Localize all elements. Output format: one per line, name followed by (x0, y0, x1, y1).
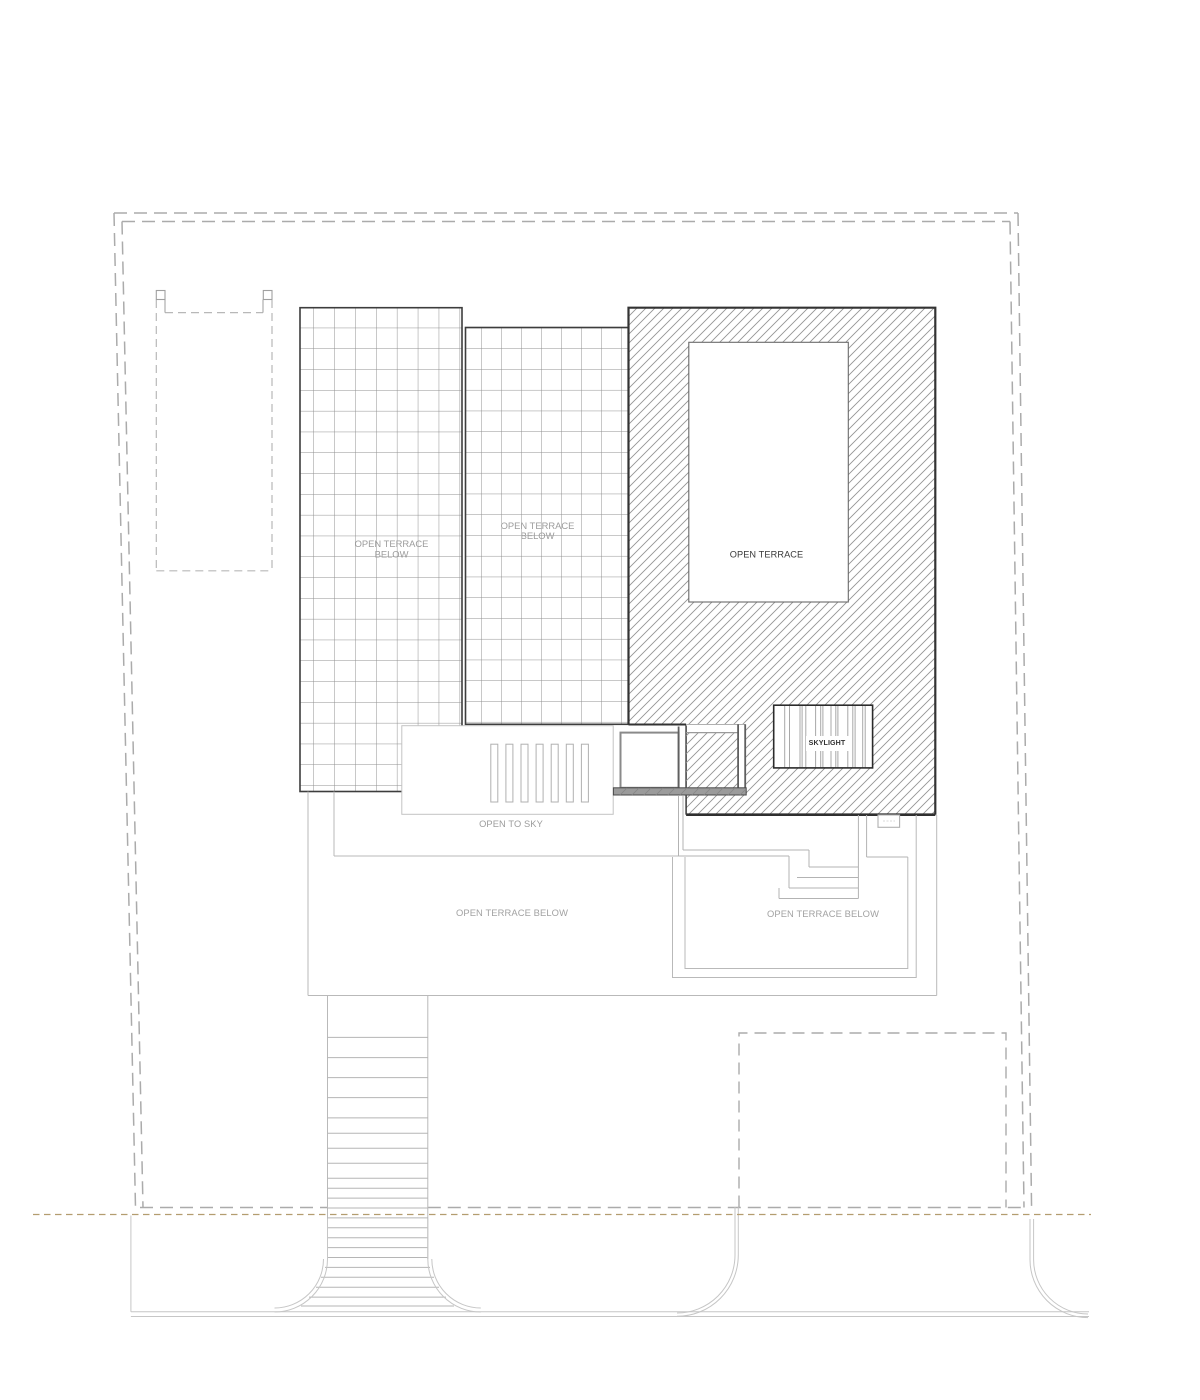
svg-text:OPEN TERRACE BELOW: OPEN TERRACE BELOW (456, 907, 568, 918)
svg-text:BELOW: BELOW (375, 549, 409, 560)
svg-text:BELOW: BELOW (521, 530, 555, 541)
svg-text:OPEN TERRACE: OPEN TERRACE (730, 550, 804, 560)
svg-text:OPEN TERRACE BELOW: OPEN TERRACE BELOW (767, 908, 879, 919)
svg-text:OPEN TERRACE: OPEN TERRACE (355, 538, 429, 549)
svg-text:OPEN TO SKY: OPEN TO SKY (479, 819, 543, 829)
svg-text:SKYLIGHT: SKYLIGHT (809, 739, 846, 747)
